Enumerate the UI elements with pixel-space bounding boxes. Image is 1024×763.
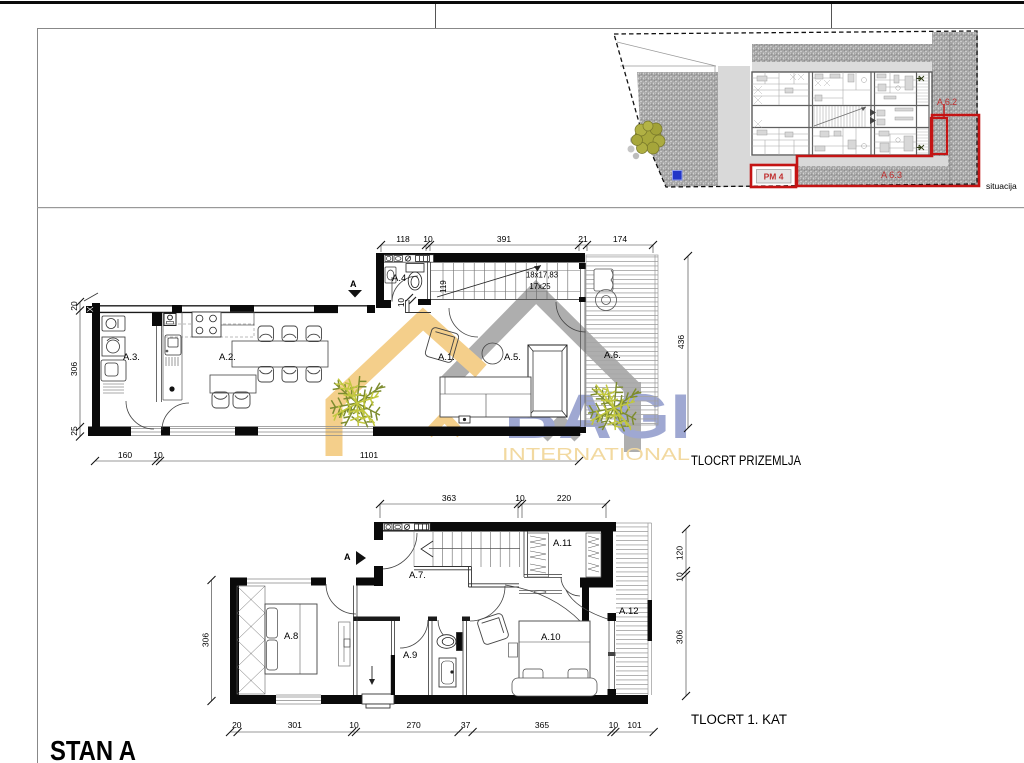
svg-text:306: 306: [675, 630, 685, 644]
svg-text:306: 306: [201, 633, 211, 647]
svg-text:270: 270: [407, 720, 421, 730]
svg-text:10: 10: [675, 572, 685, 582]
svg-text:17x25: 17x25: [529, 282, 551, 291]
svg-text:21: 21: [578, 234, 588, 244]
svg-text:363: 363: [442, 493, 456, 503]
svg-text:TLOCRT PRIZEMLJA: TLOCRT PRIZEMLJA: [691, 453, 801, 468]
svg-text:37: 37: [461, 720, 471, 730]
svg-text:25: 25: [69, 426, 79, 436]
svg-text:A.4: A.4: [392, 273, 406, 284]
svg-text:220: 220: [557, 493, 571, 503]
svg-text:TLOCRT 1. KAT: TLOCRT 1. KAT: [691, 712, 787, 727]
svg-text:1101: 1101: [360, 450, 379, 460]
svg-text:436: 436: [676, 335, 686, 349]
svg-text:174: 174: [613, 234, 627, 244]
svg-text:120: 120: [675, 546, 685, 560]
svg-text:10: 10: [349, 720, 359, 730]
svg-text:A.9: A.9: [403, 650, 417, 661]
svg-text:118: 118: [396, 234, 410, 244]
svg-text:STAN A: STAN A: [50, 735, 136, 763]
svg-text:A 6.2: A 6.2: [937, 97, 957, 107]
svg-text:A: A: [344, 552, 351, 562]
svg-text:A: A: [350, 279, 357, 289]
svg-text:306: 306: [69, 362, 79, 376]
svg-text:119: 119: [439, 280, 448, 293]
svg-text:A.12: A.12: [619, 606, 639, 617]
svg-text:20: 20: [232, 720, 242, 730]
svg-text:365: 365: [535, 720, 549, 730]
svg-text:A.7.: A.7.: [409, 570, 426, 581]
svg-text:10: 10: [609, 720, 619, 730]
svg-text:A 6.3: A 6.3: [881, 170, 902, 180]
svg-text:391: 391: [497, 234, 511, 244]
svg-text:20: 20: [69, 301, 79, 311]
svg-text:A.11: A.11: [553, 538, 572, 549]
svg-text:101: 101: [627, 720, 641, 730]
svg-text:A.1.: A.1.: [438, 352, 455, 363]
svg-text:301: 301: [288, 720, 302, 730]
svg-text:160: 160: [118, 450, 132, 460]
svg-text:10: 10: [397, 298, 406, 307]
svg-text:10: 10: [153, 450, 163, 460]
svg-text:situacija: situacija: [986, 181, 1017, 191]
svg-text:10: 10: [515, 493, 525, 503]
svg-text:A.10: A.10: [541, 632, 561, 643]
svg-text:A.6.: A.6.: [604, 350, 621, 361]
svg-text:18x17,83: 18x17,83: [526, 271, 558, 280]
svg-text:10: 10: [423, 234, 433, 244]
svg-text:A.2.: A.2.: [219, 352, 236, 363]
svg-text:PM 4: PM 4: [764, 172, 784, 182]
svg-text:A.5.: A.5.: [504, 352, 521, 363]
svg-text:A.8: A.8: [284, 631, 298, 642]
svg-text:A.3.: A.3.: [123, 352, 140, 363]
